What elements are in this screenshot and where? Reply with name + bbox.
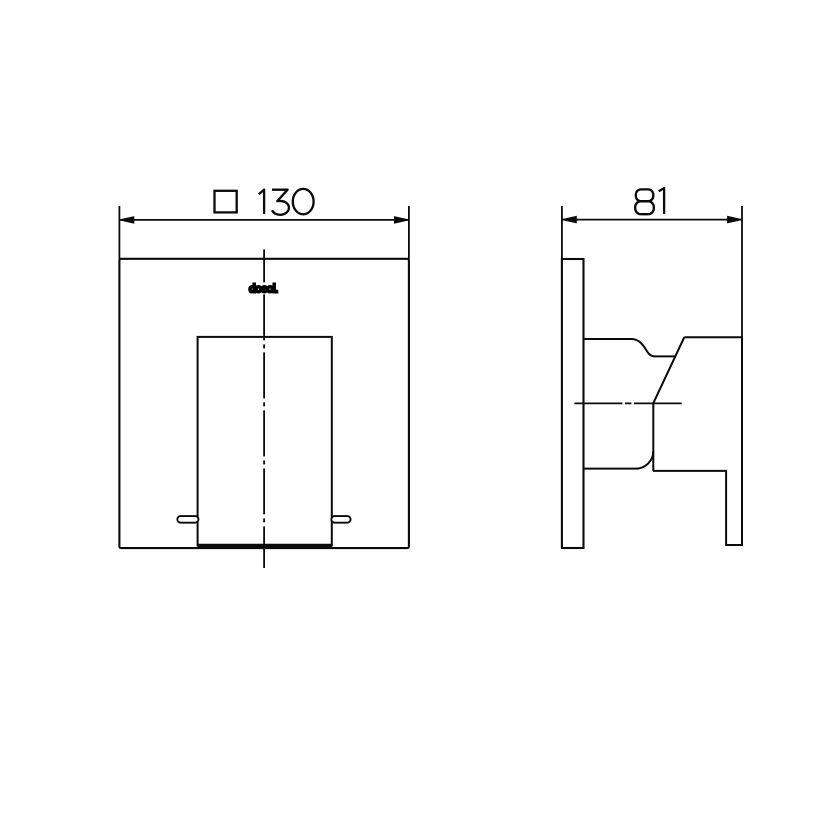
svg-text:docol.: docol.: [249, 284, 278, 296]
